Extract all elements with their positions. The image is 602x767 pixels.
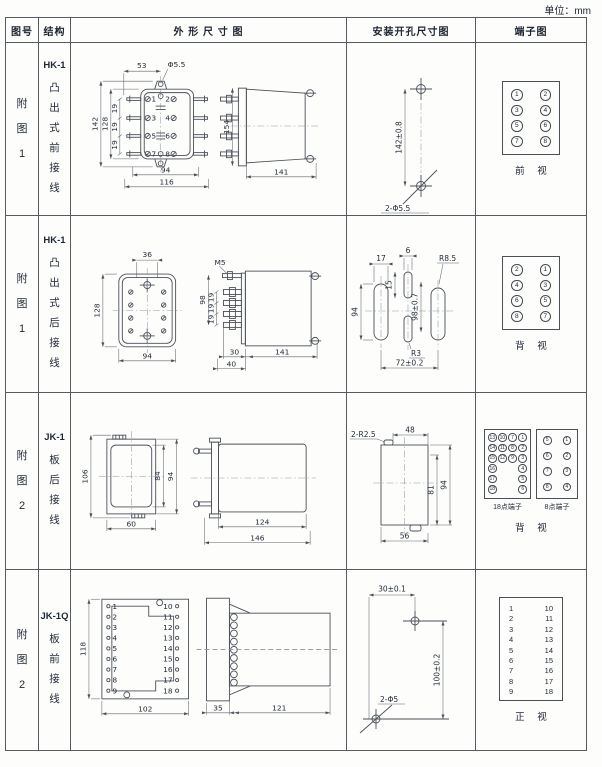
pin-number: 16 [163, 665, 173, 674]
dim-label: 116 [160, 177, 175, 186]
dim-label: 19 [110, 140, 119, 150]
pin-number: 8 [165, 149, 170, 158]
fig-no: 附 图 1 [17, 92, 28, 167]
dim-label: 19 [206, 293, 215, 303]
pin-number: 17 [163, 675, 173, 684]
jk1-outline-drawing: 106 84 94 60 124 [71, 393, 346, 569]
terminal-pin: 7 [540, 311, 552, 323]
pin-number: 18 [163, 686, 173, 695]
dim-label: 19 [110, 122, 119, 132]
structure-name: 凸 出 式 前 接 线 [49, 78, 60, 198]
dim-label: R3 [411, 349, 421, 358]
terminal-label: 18点端子 [493, 502, 522, 512]
pin-number: 7 [151, 149, 156, 158]
dim-label: 118 [78, 641, 87, 656]
dim-label: 94 [166, 472, 175, 482]
model-name: HK-1 [43, 60, 65, 71]
dim-label: 2-R2.5 [351, 430, 376, 439]
dim-label: 141 [275, 347, 290, 356]
terminal-pin: 5 [543, 436, 552, 445]
header-structure: 结构 [39, 18, 71, 43]
header-fig-no: 图号 [6, 18, 39, 43]
pin-number: 12 [163, 622, 173, 631]
terminal-pin: 2 [518, 444, 527, 453]
terminal-pin: 6 [540, 120, 552, 132]
dim-label: 2-Φ5 [380, 695, 398, 704]
terminal-pin: 2 [511, 264, 523, 276]
install-cell: 17 6 15 94 98±0.7 R8.5 R3 72±0.2 [347, 216, 476, 393]
dim-label: 94 [142, 351, 152, 360]
terminal-box-18: 131071 141182 151293 164 175 186 [484, 429, 531, 499]
terminal-pin: 1 [518, 433, 527, 442]
dim-label: 94 [440, 480, 449, 490]
hk1-front-install-drawing: 142±0.8 2-Φ5.5 [347, 43, 475, 215]
terminal-cell: 21 43 65 87 背 视 [476, 216, 586, 393]
terminal-pin: 2 [563, 452, 572, 461]
structure-name: 板 后 接 线 [49, 450, 60, 530]
dim-label: 72±0.2 [396, 359, 424, 368]
view-label: 背 视 [510, 338, 552, 352]
pin-number: 4 [165, 114, 170, 123]
header-terminal: 端子图 [476, 18, 586, 43]
dim-label: 17 [376, 254, 386, 263]
terminal-pin: 15 [488, 454, 497, 463]
fig-no-cell: 附 图 1 [6, 43, 39, 216]
fig-no: 附 图 1 [17, 267, 28, 342]
dim-label: 6 [406, 246, 411, 255]
terminal-pin: 11 [498, 444, 507, 453]
terminal-pin: 13 [488, 433, 497, 442]
view-label: 正 视 [510, 709, 552, 723]
dim-label: 48 [405, 426, 415, 435]
dim-label: 128 [92, 303, 101, 318]
pin-number: 5 [151, 131, 156, 140]
pin-number: 5 [112, 644, 117, 653]
hk1-front-outline-drawing: 53 Φ5.5 142 128 19 19 19 94 116 [71, 43, 346, 215]
dim-label: 56 [400, 532, 410, 541]
dim-label: 36 [142, 250, 152, 259]
structure-cell: HK-1 凸 出 式 前 接 线 [39, 43, 71, 216]
install-cell: 2-R2.5 48 81 94 56 [347, 393, 476, 570]
dim-label: 53 [137, 61, 147, 70]
terminal-pin: 2 [540, 89, 552, 101]
terminal-group: 131071 141182 151293 164 175 186 18点端子 5… [484, 429, 578, 512]
terminal-cell: 1 2 3 4 5 6 7 8 9 10 11 12 13 14 15 16 1… [476, 570, 586, 750]
install-cell: 30±0.1 100±0.2 2-Φ5 [347, 570, 476, 750]
terminal-pin: 7 [511, 136, 523, 148]
terminal-pin: 7 [508, 433, 517, 442]
outline-cell: 53 Φ5.5 142 128 19 19 19 94 116 [71, 43, 347, 216]
pin-number: 2 [165, 95, 170, 104]
fig-no: 附 图 2 [17, 444, 28, 519]
install-cell: 142±0.8 2-Φ5.5 [347, 43, 476, 216]
pin-number: 1 [112, 601, 117, 610]
pin-number: 6 [112, 654, 117, 663]
terminal-pin: 1 [563, 436, 572, 445]
dim-label: 106 [80, 469, 89, 484]
dim-label: 84 [153, 471, 162, 481]
terminal-pin: 10 [498, 433, 507, 442]
outline-cell: 1 2 3 4 5 6 7 8 9 10 11 12 13 14 15 [71, 570, 347, 750]
terminal-numbers-right: 10 11 12 13 14 15 16 17 18 [545, 604, 553, 694]
terminal-pin: 5 [511, 120, 523, 132]
view-label: 前 视 [510, 163, 552, 177]
pin-number: 3 [112, 622, 117, 631]
unit-label: 单位：mm [544, 2, 591, 17]
dim-label: 142 [90, 117, 99, 131]
terminal-pin: 4 [540, 105, 552, 117]
fig-no-cell: 附 图 1 [6, 216, 39, 393]
dim-label: 19 [206, 303, 215, 313]
dim-label: 81 [427, 485, 436, 495]
pin-number: 8 [112, 675, 117, 684]
terminal-pin: 4 [518, 464, 527, 473]
pin-number: 4 [112, 633, 117, 642]
dim-label: 30±0.1 [378, 584, 406, 593]
structure-cell: JK-1 板 后 接 线 [39, 393, 71, 570]
dim-label: 35 [213, 703, 223, 712]
terminal-pin: 4 [563, 483, 572, 492]
dim-label: 142±0.8 [395, 121, 404, 154]
terminal-pin: 4 [511, 280, 523, 292]
terminal-cell: 131071 141182 151293 164 175 186 18点端子 5… [476, 393, 586, 570]
structure-name: 板 前 接 线 [49, 629, 60, 709]
pin-number: 15 [163, 654, 173, 663]
dim-label: 141 [274, 167, 289, 176]
terminal-pin: 5 [540, 295, 552, 307]
terminal-box: 1 2 3 4 5 6 7 8 9 10 11 12 13 14 15 16 1… [499, 597, 563, 701]
structure-cell: HK-1 凸 出 式 后 接 线 [39, 216, 71, 393]
dim-label: 2-Φ5.5 [385, 204, 411, 213]
terminal-pin: 3 [518, 454, 527, 463]
terminal-box-8: 51 62 73 84 [536, 429, 578, 499]
terminal-pin: 7 [543, 467, 552, 476]
pin-number: 7 [112, 665, 117, 674]
dim-label: 60 [127, 519, 137, 528]
jk1-install-drawing: 2-R2.5 48 81 94 56 [347, 393, 475, 569]
terminal-numbers-left: 1 2 3 4 5 6 7 8 9 [509, 604, 513, 694]
dim-label: R8.5 [439, 254, 456, 263]
jk1q-outline-drawing: 1 2 3 4 5 6 7 8 9 10 11 12 13 14 15 [71, 571, 346, 750]
structure-cell: JK-1Q 板 前 接 线 [39, 570, 71, 750]
terminal-pin: 18 [488, 485, 497, 494]
dim-label: 19 [110, 104, 119, 114]
fig-no-cell: 附 图 2 [6, 570, 39, 750]
pin-number: 13 [163, 633, 173, 642]
terminal-cell: 12 34 56 78 前 视 [476, 43, 586, 216]
pin-number: 6 [165, 131, 170, 140]
terminal-pin: 8 [511, 311, 523, 323]
pin-number: 10 [163, 601, 173, 610]
terminal-pin: 3 [563, 467, 572, 476]
dim-label: 124 [255, 517, 270, 526]
structure-name: 凸 出 式 后 接 线 [49, 253, 60, 373]
terminal-pin: 6 [511, 295, 523, 307]
terminal-pin: 8 [508, 444, 517, 453]
terminal-pin: 3 [511, 105, 523, 117]
dim-label: 15 [385, 280, 394, 290]
outline-cell: 106 84 94 60 124 [71, 393, 347, 570]
terminal-pin: 16 [488, 464, 497, 473]
terminal-pin: 3 [540, 280, 552, 292]
outline-cell: 36 128 [71, 216, 347, 393]
model-name: JK-1Q [41, 611, 69, 622]
terminal-label: 8点端子 [545, 502, 570, 512]
pin-number: 14 [163, 644, 173, 653]
dim-label: 146 [250, 533, 265, 542]
terminal-pin: 9 [508, 454, 517, 463]
pin-number: 3 [151, 114, 156, 123]
terminal-pin: 5 [518, 475, 527, 484]
terminal-pin: 17 [488, 475, 497, 484]
pin-number: 1 [151, 95, 156, 104]
dim-label: 121 [272, 703, 287, 712]
terminal-pin: 8 [543, 483, 552, 492]
dim-label: 102 [138, 704, 152, 713]
jk1q-install-drawing: 30±0.1 100±0.2 2-Φ5 [347, 571, 475, 750]
header-install: 安装开孔尺寸图 [347, 18, 476, 43]
spec-sheet-page: 单位：mm 图号 结构 外 形 尺 寸 图 安装开孔尺寸图 端子图 附 图 1 … [0, 0, 602, 767]
terminal-pin: 14 [488, 444, 497, 453]
terminal-pin: 6 [543, 452, 552, 461]
terminal-pin: 6 [518, 485, 527, 494]
pin-number: 2 [112, 612, 117, 621]
dim-label: 100±0.2 [433, 653, 442, 686]
dim-label: M5 [214, 258, 225, 267]
dim-label: Φ5.5 [168, 60, 186, 69]
dim-label: 30 [230, 347, 240, 356]
terminal-pin: 1 [511, 89, 523, 101]
dimension-table: 图号 结构 外 形 尺 寸 图 安装开孔尺寸图 端子图 附 图 1 HK-1 凸… [5, 17, 587, 751]
terminal-box: 12 34 56 78 [502, 81, 560, 155]
view-label: 背 视 [510, 520, 552, 534]
pin-number: 11 [163, 612, 173, 621]
fig-no: 附 图 2 [17, 623, 28, 698]
model-name: HK-1 [43, 235, 65, 246]
dim-label: 19 [206, 314, 215, 324]
terminal-pin: 1 [540, 264, 552, 276]
fig-no-cell: 附 图 2 [6, 393, 39, 570]
dim-label: 128 [100, 117, 109, 132]
hk1-rear-outline-drawing: 36 128 [71, 216, 346, 392]
dim-label: 98±0.7 [411, 293, 420, 321]
terminal-box: 21 43 65 87 [502, 256, 560, 330]
terminal-pin: 8 [540, 136, 552, 148]
dim-label: 94 [351, 307, 360, 317]
hk1-rear-install-drawing: 17 6 15 94 98±0.7 R8.5 R3 72±0.2 [347, 216, 475, 392]
terminal-pin: 12 [498, 454, 507, 463]
model-name: JK-1 [44, 432, 65, 443]
pin-number: 9 [112, 686, 117, 695]
header-outline: 外 形 尺 寸 图 [71, 18, 347, 43]
dim-label: 40 [227, 359, 237, 368]
